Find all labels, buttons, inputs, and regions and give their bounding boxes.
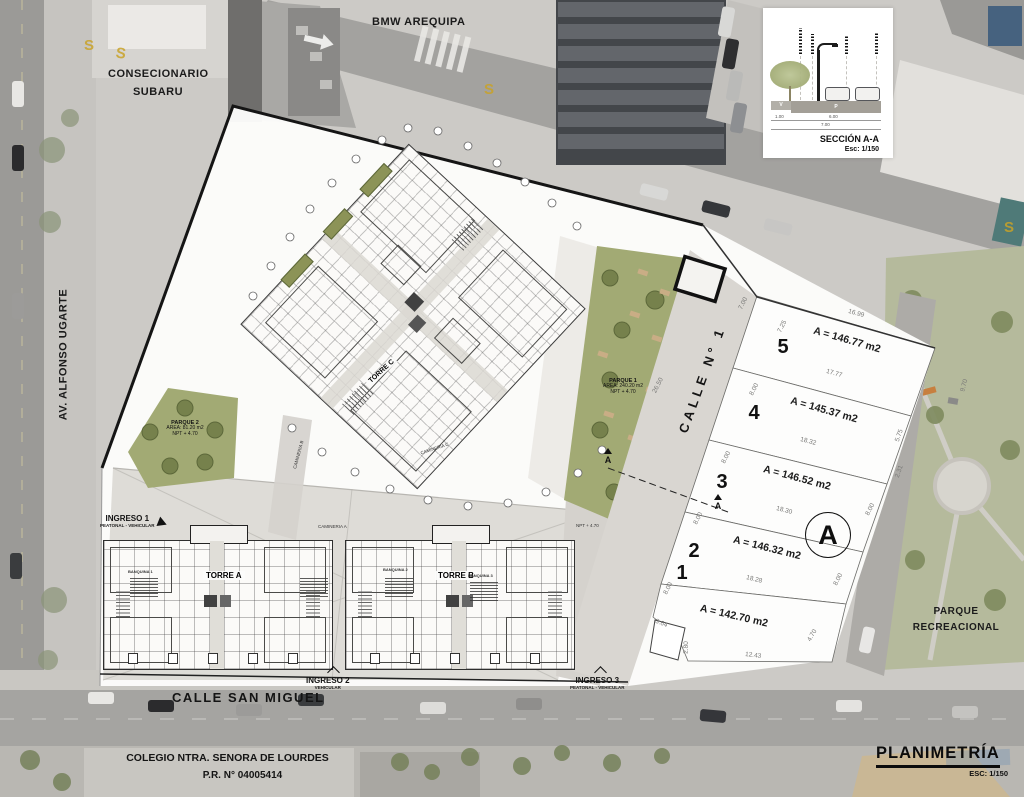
section-car [855,87,880,101]
spec-text-block [470,582,498,601]
dimension-line [771,129,881,130]
section-marker-a: A [598,448,618,465]
parque-1-label: PARQUE 1 AREA: 240.20 m2 NPT + 4.70 [588,378,658,396]
door [490,653,500,664]
section-dim-left: 1.00 [775,114,784,119]
svg-text:S: S [84,37,94,54]
lot-number: 1 [671,562,693,585]
dimension-line [771,120,791,121]
room [434,318,481,364]
section-arrow-icon [604,448,612,454]
spec-text-block [300,578,328,597]
section-annotation-text [811,34,814,54]
section-annotation-text [875,32,878,54]
school-label: COLEGIO NTRA. SENORA DE LOURDES [120,752,335,764]
banquina-2-label: BANQUINA 2 [383,568,408,573]
stairs [358,591,372,617]
park-label-line1: PARQUE [898,606,1014,618]
section-annotation-text [845,36,848,54]
elevator-core [220,595,231,607]
sheet-title: PLANIMETRÍA [876,744,1000,768]
tower-a-floorplan [103,540,333,670]
banquina-1-label: BANQUINA 1 [128,570,153,575]
dimension-line [791,120,881,121]
ingreso-1-name: INGRESO 1 [105,514,149,523]
section-car [825,87,850,101]
section-dim-right: 6.00 [829,114,838,119]
school-registry-label: P.R. N° 04005414 [160,770,325,782]
section-marker-a: A [708,494,728,511]
camineria-a-label: CAMINERIA A [318,524,347,529]
section-letter: A [818,520,838,551]
park-label-line2: RECREACIONAL [898,622,1014,634]
lamp-head [832,44,838,47]
ingreso-2-label: INGRESO 2 VEHICULAR [306,676,350,691]
ingreso-2-type: VEHICULAR [306,685,350,690]
svg-text:S: S [1004,219,1014,236]
door [208,653,218,664]
parque-2-npt: NPT + 4.70 [150,432,220,438]
section-annotation-text [799,28,802,54]
guide-line [812,56,813,100]
ingreso-3-type: PEATONAL - VEHICULAR [570,685,625,690]
sheet-scale: ESC: 1/150 [930,769,1008,778]
svg-text:S: S [484,81,494,98]
ingreso-1-label: INGRESO 1 PEATONAL - VEHICULAR [100,514,155,529]
door [128,653,138,664]
dealer-label-line1: CONSECIONARIO [108,68,208,81]
tower-b-floorplan [345,540,575,670]
banquina-3-label: BANQUINA 3 [468,574,493,579]
site-plan-sheet: S S S S [0,0,1024,797]
san-miguel-road [0,690,1024,746]
stairs [548,591,562,617]
parque-1-npt: NPT + 4.70 [588,390,658,396]
elevator-core [204,595,217,607]
elevator-core [446,595,459,607]
spec-text-block [385,578,413,597]
dealer-label-line2: SUBARU [108,86,208,99]
apartment-unit [110,617,172,663]
sidewalk-section: V [771,101,791,110]
stairs [116,591,130,617]
apartment-unit [506,547,568,593]
section-tree-trunk [789,86,791,102]
lot-number: 4 [743,402,765,425]
door [450,653,460,664]
section-marker-letter: A [715,501,722,511]
door [410,653,420,664]
road-section: P [791,101,881,113]
door [168,653,178,664]
ingreso-3-name: INGRESO 3 [575,676,619,685]
apartment-unit [352,617,414,663]
section-arrow-icon [714,494,722,500]
lot-number: 3 [711,471,733,494]
section-tree [770,61,810,89]
door [288,653,298,664]
torre-a-label: TORRE A [203,571,245,580]
door [530,653,540,664]
section-a-a-inset: V P 1.00 6.00 7.00 SECCIÓN A-A Esc: 1/15… [763,8,893,158]
street-label-avenue: AV. ALFONSO UGARTE [58,269,71,439]
ingreso-1-type: PEATONAL - VEHICULAR [100,523,155,528]
dimension-label: 2.80 [683,641,690,654]
section-scale: Esc: 1/150 [791,146,879,153]
lot-number: 2 [683,540,705,563]
parque-2-label: PARQUE 2 AREA: 81.20 m2 NPT + 4.70 [150,420,220,438]
section-letter-circle: A [805,512,851,558]
ingreso-3-label: INGRESO 3 PEATONAL - VEHICULAR [570,676,625,691]
section-title: SECCIÓN A-A [791,134,879,144]
spec-text-block [130,578,158,597]
npt-label: NPT + 4.70 [576,523,599,528]
door [248,653,258,664]
section-marker-letter: A [605,455,612,465]
lamp-post [817,50,820,102]
street-label-san-miguel: CALLE SAN MIGUEL [172,690,325,705]
section-dim-total: 7.00 [821,122,830,127]
lot-number: 5 [772,336,794,359]
ingreso-2-name: INGRESO 2 [306,676,350,685]
street-label-bmw: BMW AREQUIPA [372,16,465,29]
door [370,653,380,664]
